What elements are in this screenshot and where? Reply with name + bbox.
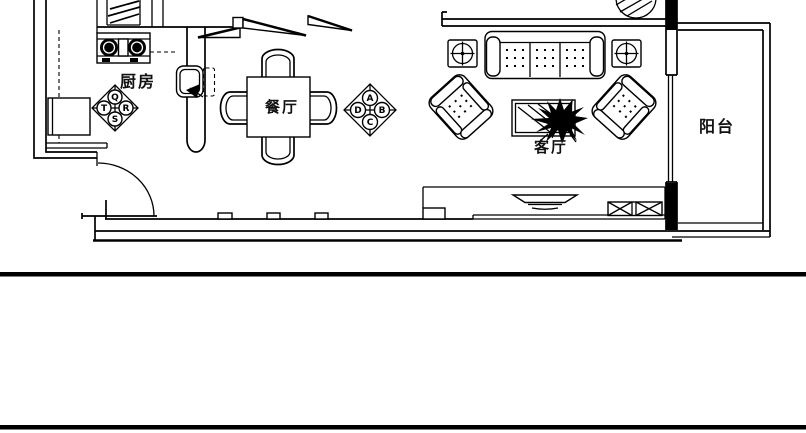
horizontal-rule-bottom bbox=[0, 425, 806, 430]
tag-letter: S bbox=[112, 115, 118, 125]
tag-letter: D bbox=[354, 106, 361, 116]
tag-letter: T bbox=[101, 104, 108, 114]
sheet-divider-lines bbox=[0, 272, 806, 430]
vent-shaft-hatch-icon bbox=[108, 1, 140, 23]
entry-door-icon bbox=[82, 163, 157, 219]
horizontal-rule-top bbox=[0, 272, 806, 277]
balcony-window-icon bbox=[669, 75, 673, 182]
tag-letter: Q bbox=[111, 93, 119, 103]
tag-letter: R bbox=[123, 104, 130, 114]
wall-tick bbox=[218, 213, 232, 219]
finish-tag-dining: A B C D bbox=[344, 84, 396, 136]
room-label-dining: 餐厅 bbox=[265, 98, 299, 116]
tv-cabinet-x-icon bbox=[608, 202, 662, 216]
tag-letter: C bbox=[367, 118, 374, 128]
round-plant-icon bbox=[616, 0, 656, 18]
finish-tag-kitchen: Q R S T bbox=[92, 85, 138, 131]
fridge-icon bbox=[48, 98, 90, 135]
tag-letter: A bbox=[367, 94, 374, 104]
armchair-right-icon bbox=[589, 72, 659, 143]
side-table-left-icon bbox=[448, 40, 477, 67]
wall-tick bbox=[315, 213, 328, 219]
tag-letter: B bbox=[379, 106, 386, 116]
armchair-left-icon bbox=[426, 72, 496, 143]
sink-icon bbox=[177, 66, 215, 98]
stove-icon bbox=[97, 33, 150, 63]
room-label-living: 客厅 bbox=[533, 138, 568, 156]
wall-tick bbox=[267, 213, 280, 219]
room-label-kitchen: 厨房 bbox=[120, 72, 156, 91]
side-table-right-icon bbox=[612, 40, 641, 67]
sofa-icon bbox=[485, 32, 605, 79]
tv-icon bbox=[513, 195, 577, 209]
room-label-balcony: 阳台 bbox=[699, 117, 735, 136]
floor-plan-sheet: Q R S T 厨房 餐厅 A B C D bbox=[0, 0, 806, 433]
